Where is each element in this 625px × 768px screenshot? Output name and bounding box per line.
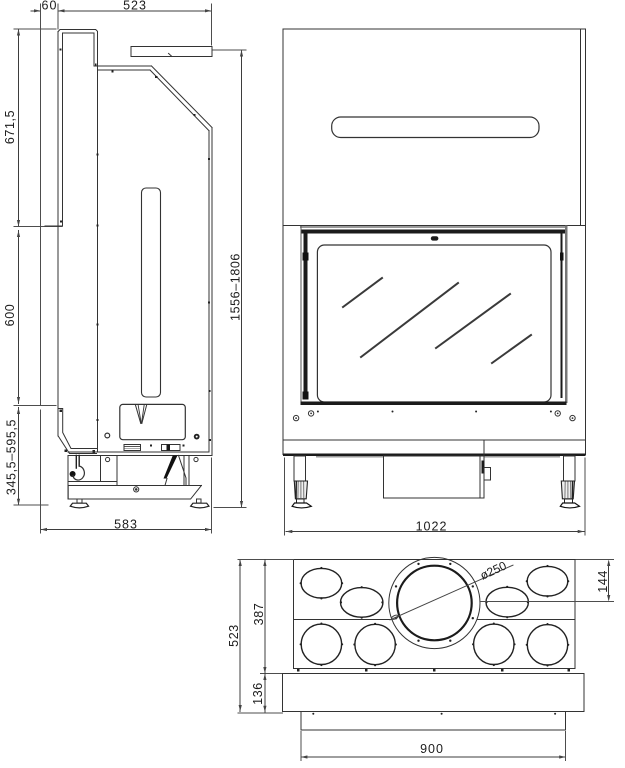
svg-text:1556–1806: 1556–1806 (228, 253, 242, 321)
svg-text:ø250: ø250 (478, 558, 509, 582)
svg-text:345,5–595,5: 345,5–595,5 (5, 419, 19, 495)
svg-text:600: 600 (3, 304, 17, 327)
svg-text:60: 60 (42, 0, 58, 13)
svg-text:900: 900 (420, 742, 444, 756)
svg-text:671,5: 671,5 (3, 110, 17, 144)
svg-text:523: 523 (227, 624, 241, 647)
svg-text:136: 136 (251, 682, 265, 705)
svg-text:144: 144 (596, 570, 610, 593)
svg-text:387: 387 (252, 603, 266, 626)
